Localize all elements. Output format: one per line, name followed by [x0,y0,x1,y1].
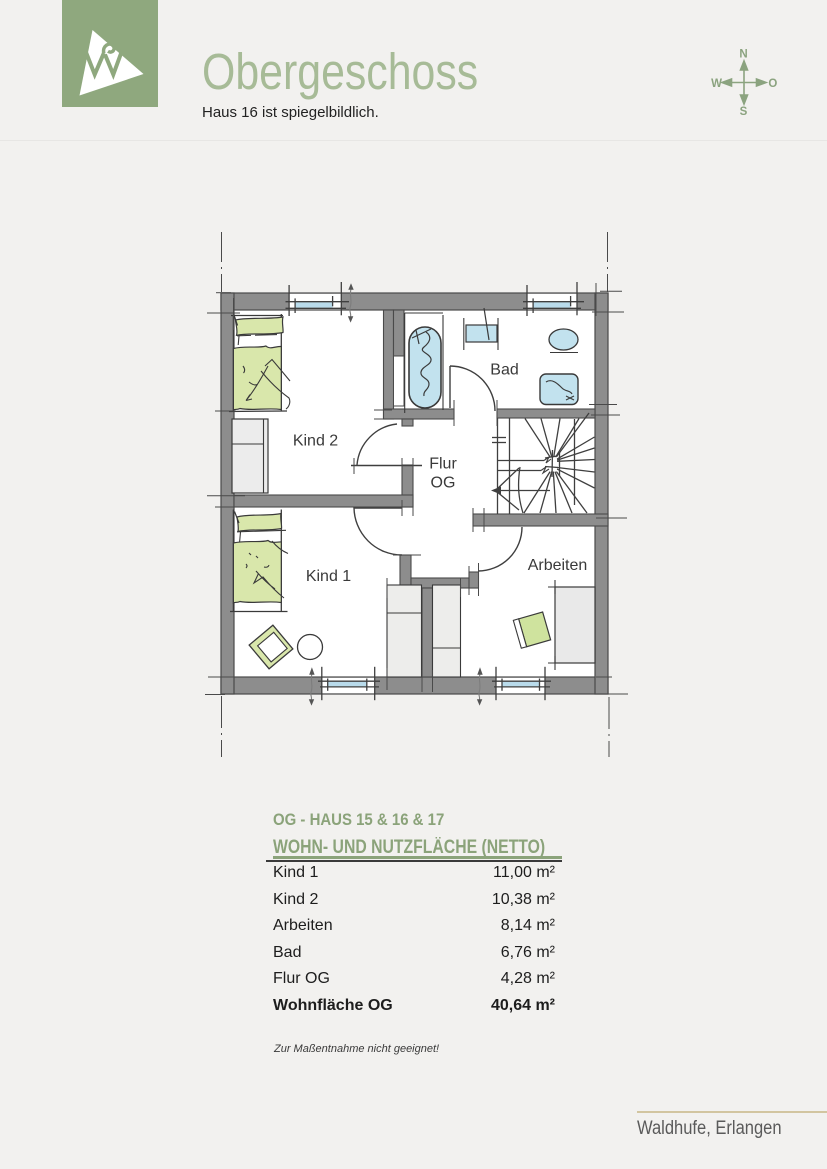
svg-text:OG: OG [431,475,456,492]
svg-text:Arbeiten: Arbeiten [528,557,588,574]
svg-text:Kind 1: Kind 1 [306,568,351,585]
svg-text:Kind 2: Kind 2 [293,433,338,450]
svg-text:Flur: Flur [429,456,457,473]
svg-text:Bad: Bad [490,362,518,379]
